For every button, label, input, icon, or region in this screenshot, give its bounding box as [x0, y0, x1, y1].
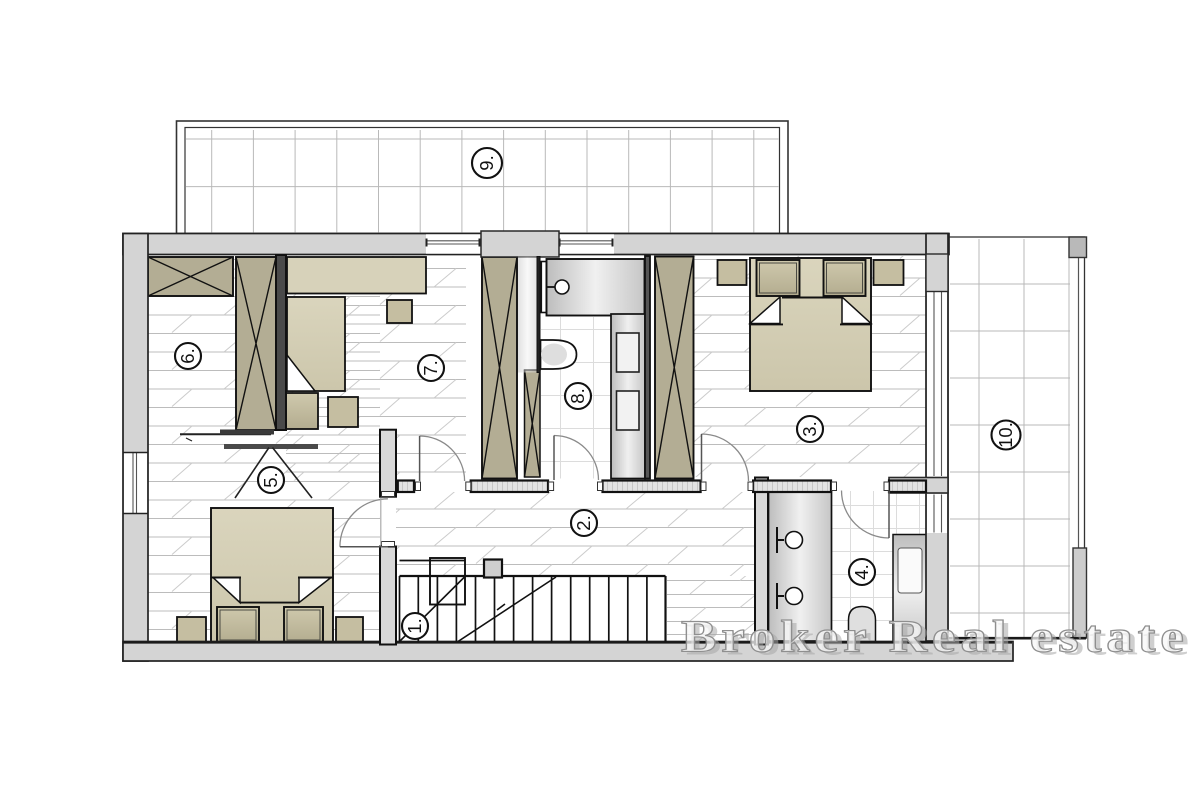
svg-text:7.: 7. [420, 360, 441, 375]
svg-text:5.: 5. [260, 472, 281, 487]
svg-text:9.: 9. [476, 155, 497, 170]
svg-text:10.: 10. [995, 422, 1016, 448]
svg-text:Broker Real estate: Broker Real estate [681, 611, 1189, 661]
svg-text:4.: 4. [851, 564, 872, 579]
svg-text:1.: 1. [404, 618, 425, 633]
svg-text:8.: 8. [567, 388, 588, 403]
svg-text:2.: 2. [573, 515, 594, 530]
svg-text:6.: 6. [177, 348, 198, 363]
svg-text:3.: 3. [799, 421, 820, 436]
